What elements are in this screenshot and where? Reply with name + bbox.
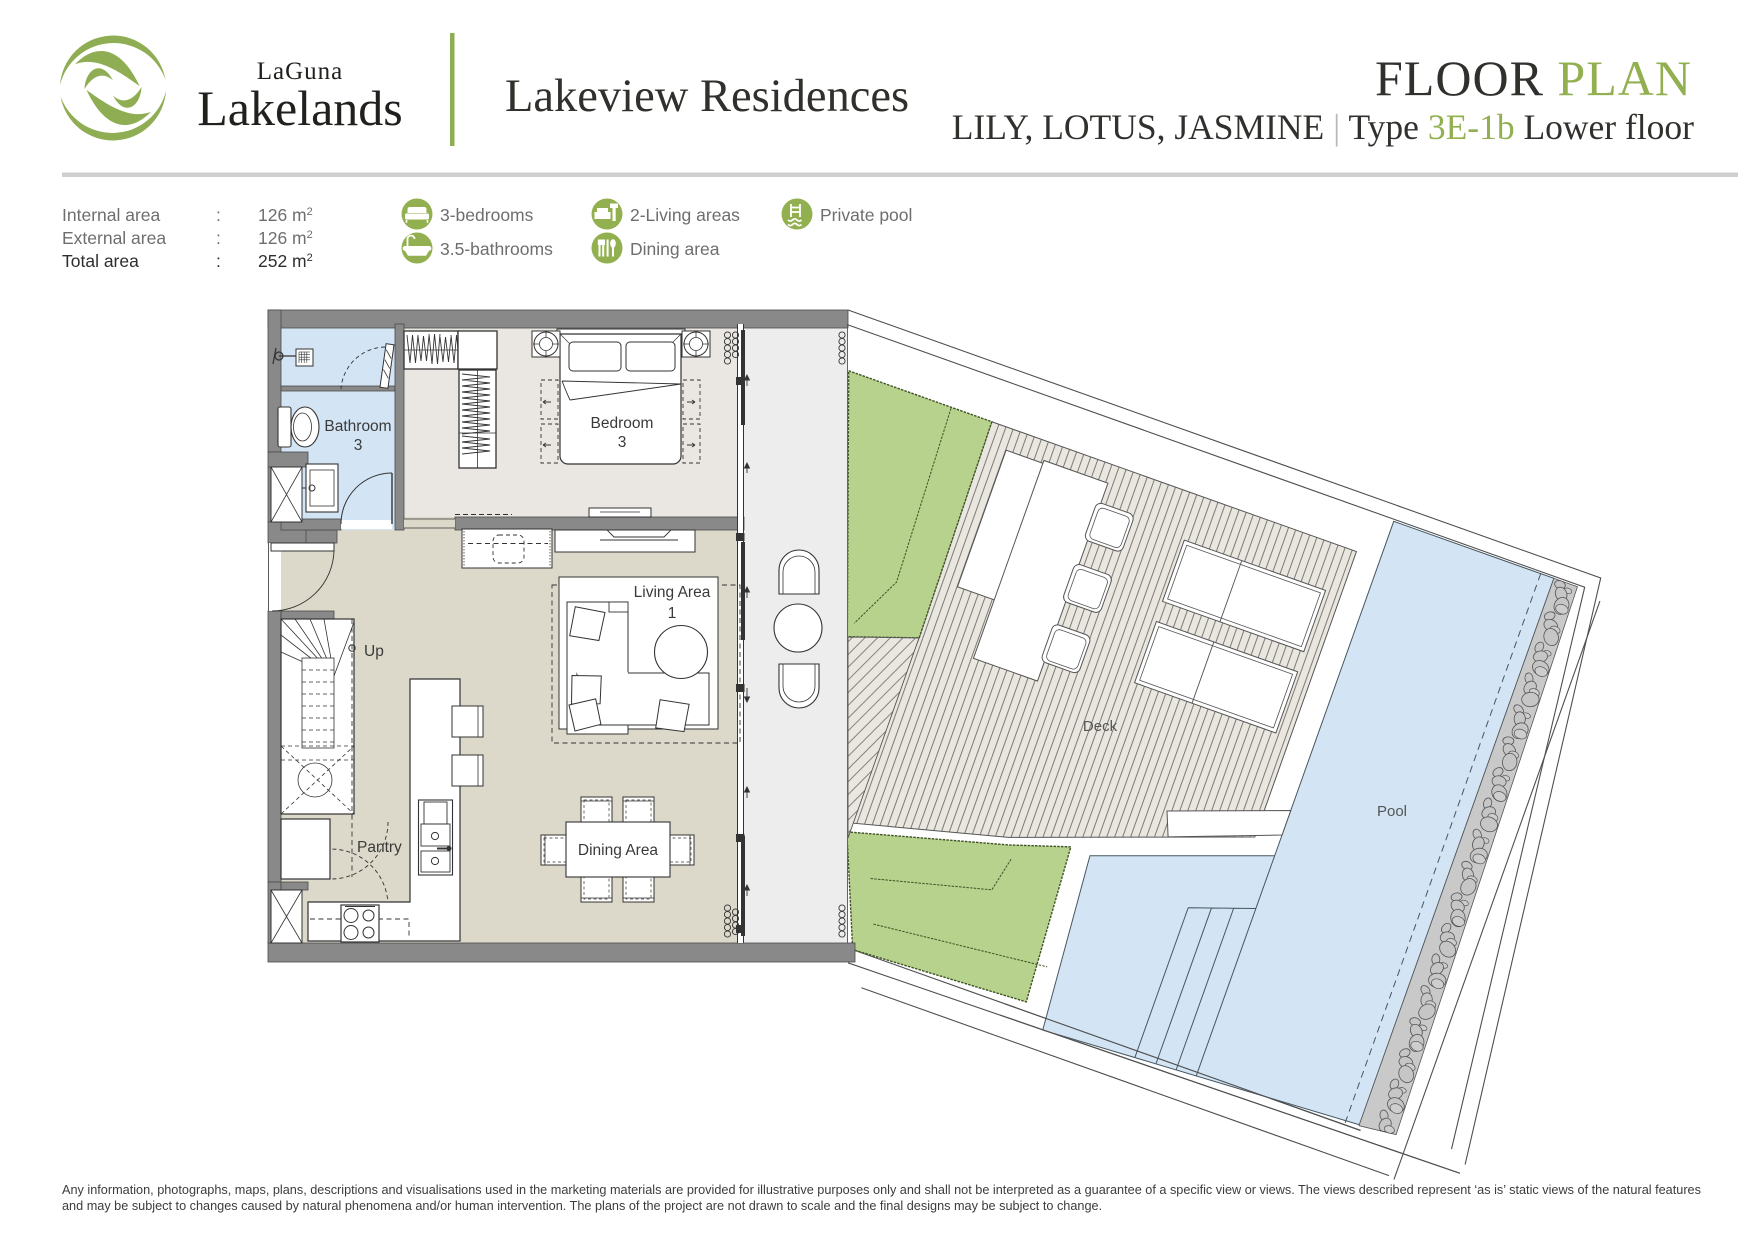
- svg-text:Internal area: Internal area: [62, 205, 161, 225]
- svg-text:External area: External area: [62, 228, 166, 248]
- svg-text::: :: [216, 205, 221, 225]
- svg-text:Dining area: Dining area: [630, 239, 720, 259]
- svg-text:126 m2: 126 m2: [258, 205, 313, 225]
- svg-text:and may be subject to changes: and may be subject to changes caused by …: [62, 1199, 1102, 1213]
- svg-text:Dining Area: Dining Area: [578, 842, 659, 859]
- svg-text:126 m2: 126 m2: [258, 228, 313, 248]
- svg-text:FLOOR PLAN: FLOOR PLAN: [1375, 50, 1692, 106]
- svg-text:3: 3: [354, 437, 363, 454]
- svg-text:Total area: Total area: [62, 251, 139, 271]
- svg-text:Deck: Deck: [1083, 718, 1118, 735]
- svg-text:LILY, LOTUS, JASMINE | Type 3E: LILY, LOTUS, JASMINE | Type 3E-1b Lower …: [952, 107, 1694, 147]
- svg-text:1: 1: [668, 605, 677, 622]
- svg-text:Bathroom: Bathroom: [324, 418, 391, 435]
- svg-text:3-bedrooms: 3-bedrooms: [440, 205, 534, 225]
- svg-text:Lakeview Residences: Lakeview Residences: [505, 71, 909, 122]
- svg-text:Living Area: Living Area: [634, 584, 711, 601]
- svg-text:3: 3: [618, 434, 627, 451]
- svg-text:Pool: Pool: [1377, 803, 1407, 820]
- svg-text:Any information, photographs,: Any information, photographs, maps, plan…: [62, 1183, 1701, 1197]
- svg-text::: :: [216, 228, 221, 248]
- svg-text::: :: [216, 251, 221, 271]
- svg-text:Lakelands: Lakelands: [197, 80, 402, 136]
- svg-text:Up: Up: [364, 643, 384, 660]
- svg-text:Private pool: Private pool: [820, 205, 912, 225]
- svg-text:Pantry: Pantry: [357, 839, 402, 856]
- svg-text:2-Living areas: 2-Living areas: [630, 205, 740, 225]
- svg-text:252 m2: 252 m2: [258, 251, 313, 271]
- svg-text:3.5-bathrooms: 3.5-bathrooms: [440, 239, 553, 259]
- svg-text:Bedroom: Bedroom: [591, 415, 654, 432]
